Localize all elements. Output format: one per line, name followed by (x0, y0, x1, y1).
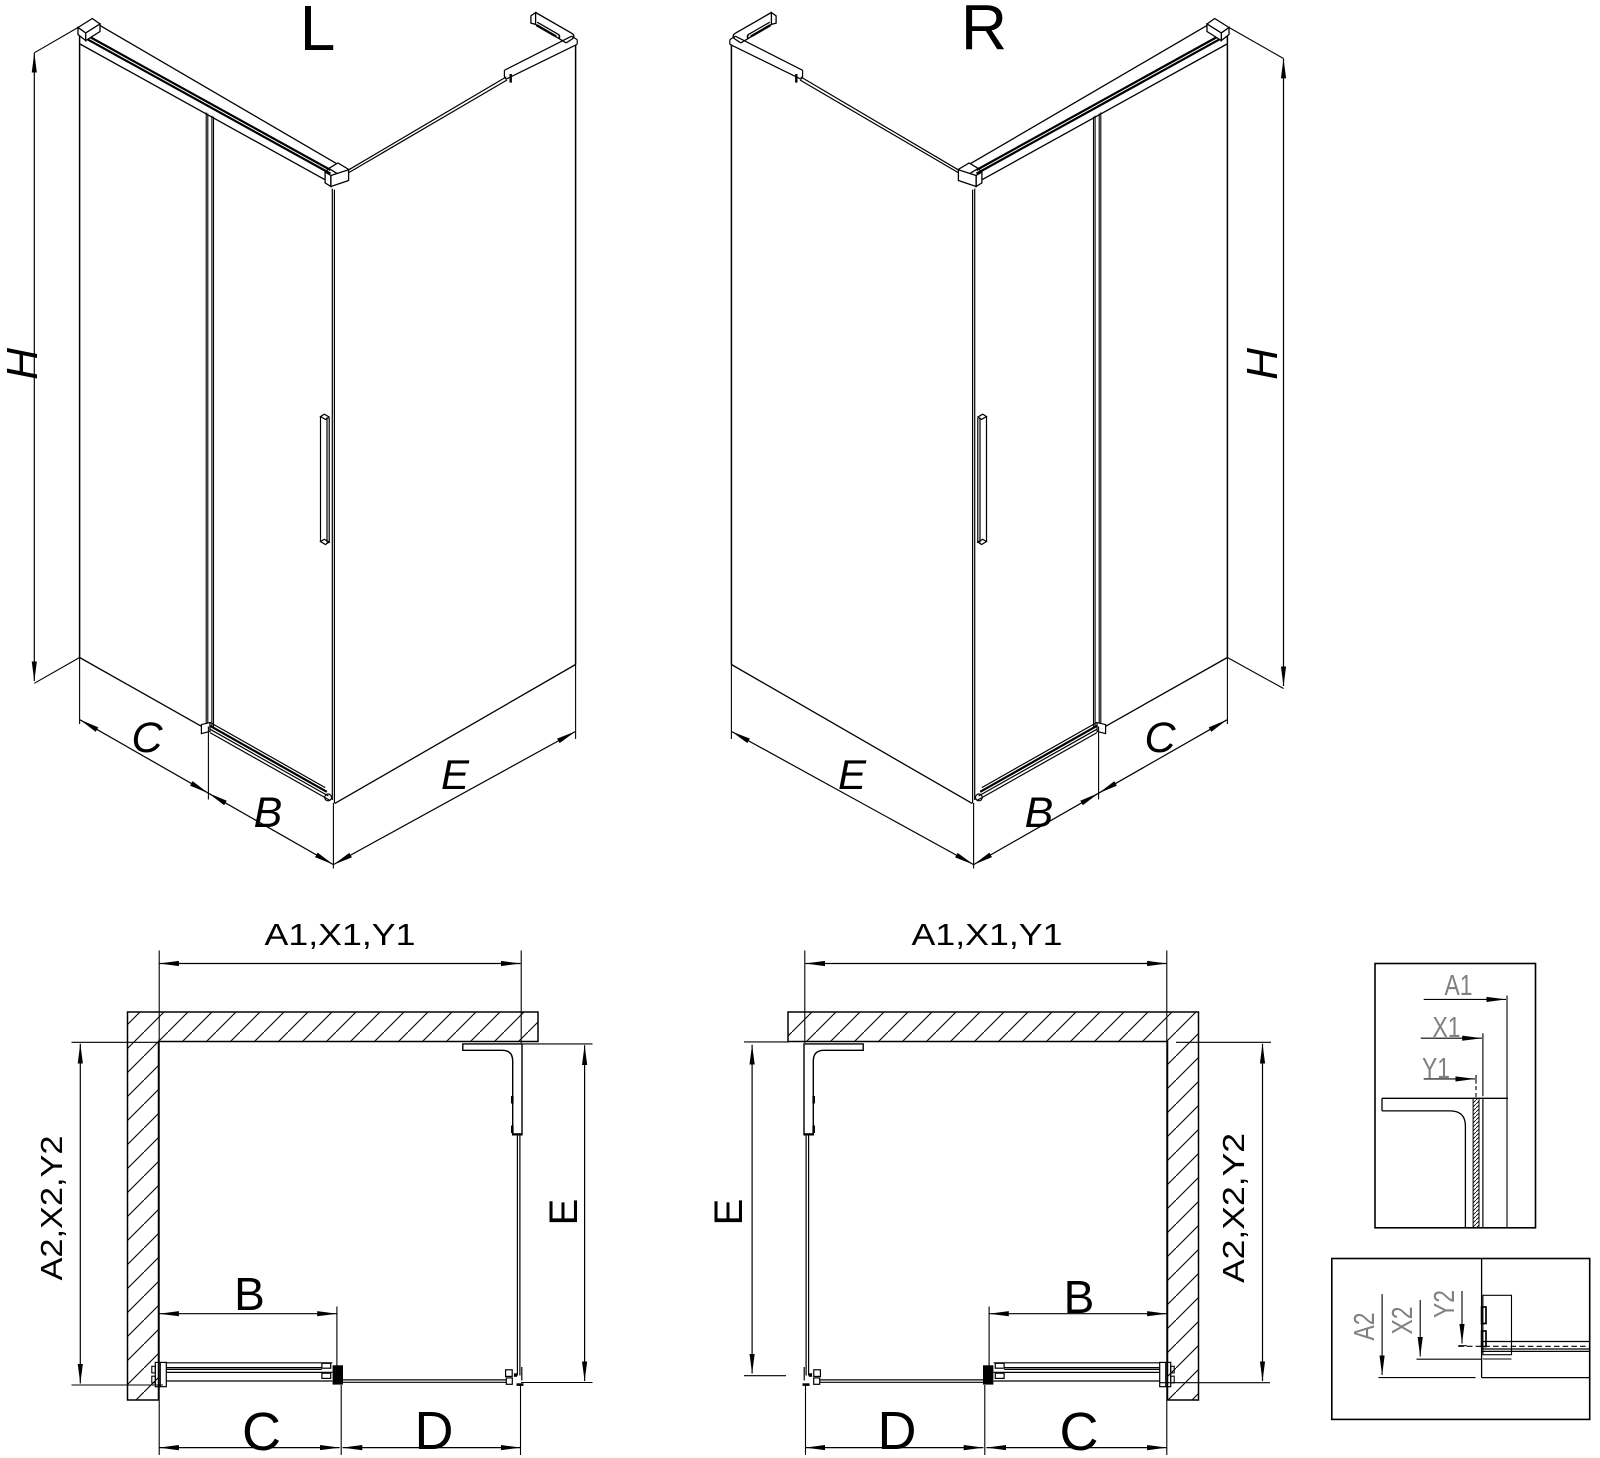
svg-text:A1: A1 (1445, 970, 1473, 1002)
svg-text:E: E (441, 751, 470, 798)
svg-text:B: B (1025, 789, 1054, 837)
svg-text:E: E (707, 1199, 751, 1226)
svg-text:B: B (234, 1268, 265, 1320)
svg-text:A2,X2,Y2: A2,X2,Y2 (34, 1136, 69, 1281)
svg-text:A2,X2,Y2: A2,X2,Y2 (1216, 1133, 1251, 1283)
svg-text:A2: A2 (1349, 1313, 1381, 1341)
svg-text:E: E (542, 1199, 586, 1226)
svg-text:D: D (878, 1401, 917, 1458)
svg-text:B: B (1064, 1271, 1095, 1323)
svg-text:C: C (242, 1402, 281, 1458)
svg-text:L: L (300, 0, 336, 64)
svg-text:R: R (961, 0, 1007, 64)
svg-text:C: C (1060, 1402, 1099, 1458)
svg-text:H: H (1238, 348, 1287, 380)
svg-text:A1,X1,Y1: A1,X1,Y1 (912, 917, 1063, 952)
svg-text:C: C (1144, 714, 1176, 762)
svg-text:E: E (838, 751, 867, 798)
svg-text:A1,X1,Y1: A1,X1,Y1 (265, 917, 416, 952)
svg-text:X2: X2 (1387, 1307, 1419, 1335)
svg-text:C: C (131, 714, 163, 762)
svg-text:Y2: Y2 (1429, 1290, 1461, 1318)
svg-text:X1: X1 (1433, 1012, 1461, 1044)
svg-text:H: H (0, 348, 47, 380)
svg-text:B: B (254, 789, 283, 837)
svg-text:Y1: Y1 (1422, 1053, 1450, 1085)
svg-text:D: D (415, 1401, 454, 1458)
